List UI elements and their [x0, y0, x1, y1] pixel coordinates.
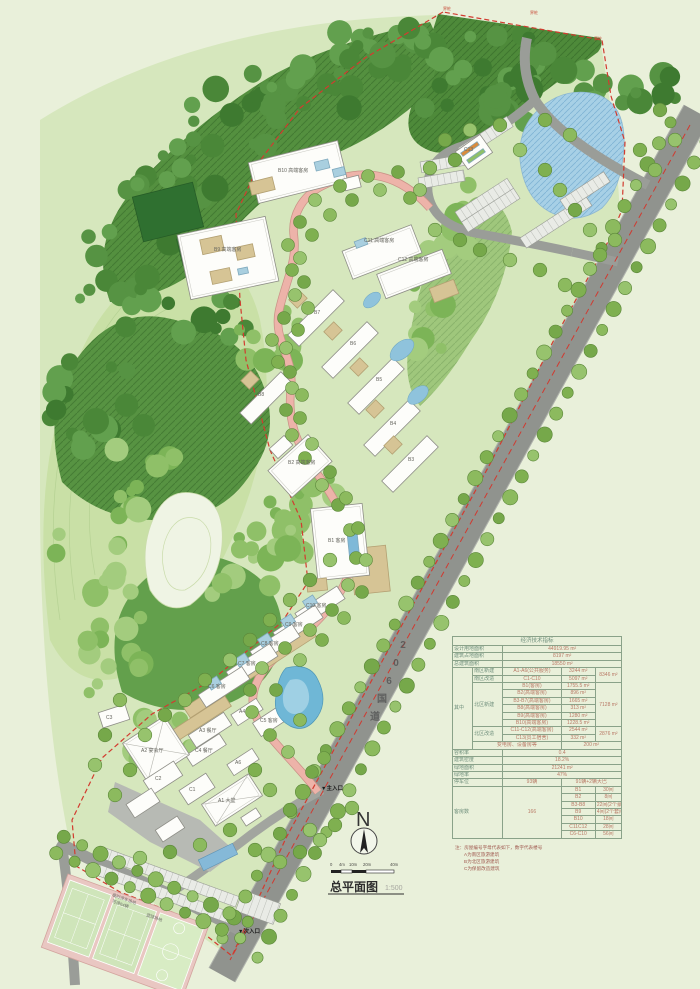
forest-canopy [395, 54, 412, 71]
forest-canopy [409, 301, 422, 314]
street-tree [330, 722, 345, 737]
street-tree [434, 615, 449, 630]
street-tree [298, 276, 311, 289]
table-cell: 南区改造 [473, 675, 503, 682]
road-name-char: 0 [393, 658, 399, 669]
street-tree [537, 345, 552, 360]
forest-canopy [337, 95, 362, 120]
table-cell: 18550 m² [503, 660, 622, 667]
forest-canopy [486, 26, 507, 47]
street-tree [278, 312, 291, 325]
street-tree [293, 845, 307, 859]
street-tree [502, 408, 517, 423]
street-tree [342, 702, 355, 715]
street-tree [306, 438, 319, 451]
street-tree [168, 881, 181, 894]
forest-canopy [115, 393, 138, 416]
street-tree [193, 838, 207, 852]
street-tree [244, 684, 257, 697]
scale-tick: 10m [349, 862, 358, 867]
street-tree [605, 219, 620, 234]
building-label-c11: C11 高端客房 [364, 237, 394, 244]
table-cell: 2876 m² [595, 727, 621, 742]
street-tree [203, 897, 218, 912]
street-tree [584, 344, 597, 357]
table-title: 经济技术指标 [453, 637, 622, 646]
street-tree [597, 324, 608, 335]
street-tree [284, 366, 297, 379]
street-tree [138, 728, 152, 742]
forest-canopy [290, 54, 316, 80]
forest-canopy [184, 97, 200, 113]
street-tree [618, 199, 631, 212]
street-tree [412, 658, 425, 671]
forest-canopy [201, 175, 228, 202]
forest-canopy [464, 31, 476, 43]
street-tree [292, 324, 305, 337]
boundary-marker: 界桩 [530, 9, 538, 15]
street-tree [296, 866, 311, 881]
table-cell: 3244 m² [561, 668, 595, 675]
street-tree [196, 914, 211, 929]
street-tree [563, 128, 577, 142]
street-tree [399, 678, 414, 693]
street-tree [286, 429, 299, 442]
scale-tick: 4m [339, 862, 345, 867]
street-tree [93, 846, 108, 861]
forest-canopy [100, 658, 116, 674]
street-tree [328, 818, 342, 832]
street-tree [549, 325, 562, 338]
street-tree [264, 729, 277, 742]
street-tree [141, 888, 156, 903]
street-tree [631, 262, 642, 273]
forest-canopy [46, 400, 66, 420]
street-tree [640, 239, 655, 254]
street-tree [338, 612, 351, 625]
table-cell: B3-B8 [561, 801, 595, 808]
table-cell: C11C12 [561, 823, 595, 830]
forest-canopy [99, 575, 111, 587]
table-cell: 总建筑面积 [453, 660, 503, 667]
drawing-title: 总平面图 1:500 [328, 879, 404, 894]
street-tree [446, 513, 459, 526]
street-tree [105, 872, 118, 885]
forest-canopy [78, 631, 98, 651]
table-cell: 绿地率 [453, 771, 503, 778]
table-cell: 容积率 [453, 749, 503, 756]
building-label-b4: B4 [390, 421, 396, 427]
table-cell: 5097 m² [561, 675, 595, 682]
forest-canopy [130, 659, 148, 677]
street-tree [124, 882, 135, 893]
boundary-marker: 界桩 [594, 35, 602, 41]
street-tree [316, 634, 329, 647]
street-tree [261, 929, 276, 944]
street-tree [303, 573, 317, 587]
street-tree [365, 741, 380, 756]
street-tree [252, 952, 263, 963]
forest-canopy [158, 171, 175, 188]
street-tree [178, 693, 192, 707]
street-tree [113, 693, 127, 707]
forest-canopy [119, 362, 136, 379]
street-tree [528, 450, 539, 461]
forest-canopy [165, 448, 183, 466]
street-tree [377, 639, 390, 652]
street-tree [527, 368, 538, 379]
forest-canopy [72, 430, 88, 446]
street-tree [294, 216, 307, 229]
street-tree [324, 209, 337, 222]
street-tree [468, 552, 483, 567]
forest-canopy [110, 507, 127, 524]
scale-tick: 40m [390, 862, 399, 867]
forest-canopy [327, 20, 352, 45]
table-cell: B10 [561, 816, 595, 823]
building-label-b2: B2 高端客房 [288, 459, 316, 466]
street-tree [163, 845, 177, 859]
street-tree [308, 846, 321, 859]
building-label-b9: B9 高端客房 [214, 246, 242, 253]
street-tree [360, 554, 373, 567]
building-label-b8: B8 [258, 392, 264, 398]
street-tree [294, 654, 307, 667]
street-tree [123, 763, 137, 777]
street-tree [133, 851, 147, 865]
street-tree [280, 342, 293, 355]
street-tree [343, 784, 356, 797]
building-label-c12: C12 高端客房 [398, 256, 429, 263]
street-tree [652, 137, 665, 150]
street-tree [223, 823, 237, 837]
street-tree [263, 613, 277, 627]
scale-tick: 20m [363, 862, 372, 867]
forest-canopy [134, 611, 147, 624]
forest-canopy [249, 90, 263, 104]
street-tree [77, 840, 88, 851]
forest-canopy [61, 353, 78, 370]
street-tree [273, 827, 286, 840]
street-tree [282, 746, 295, 759]
street-tree [428, 223, 442, 237]
street-tree [630, 180, 641, 191]
legend-notes: 注：房屋编号字母代表如下，数字代表楼号 A为南区旅游建筑 B为北区旅游建筑 C为… [455, 844, 543, 872]
building-label-b3: B3 [408, 457, 414, 463]
building-label-c10: C10 客房 [306, 602, 327, 609]
street-tree [537, 427, 552, 442]
street-tree [248, 843, 262, 857]
street-tree [448, 153, 462, 167]
forest-canopy [532, 42, 556, 66]
forest-canopy [126, 486, 136, 496]
site-plan-canvas: B10 高端客房 B9 高端客房 C11 高端客房 C12 高端客房 C13 B… [0, 0, 700, 989]
street-tree [468, 470, 483, 485]
street-tree [313, 833, 327, 847]
street-tree [633, 143, 647, 157]
forest-canopy [162, 296, 176, 310]
table-cell: A1-A6(公共服务) [503, 668, 561, 675]
forest-canopy [474, 58, 492, 76]
forest-canopy [201, 134, 225, 158]
page-title: 总平面图 [330, 879, 378, 894]
table-cell: 200 m² [561, 742, 621, 749]
forest-canopy [210, 322, 222, 334]
street-tree [424, 638, 435, 649]
table-cell: 4间(2个套间) [595, 808, 621, 815]
table-cell: B1(客房) [503, 683, 561, 690]
table-cell: 47% [503, 771, 622, 778]
forest-canopy [169, 138, 187, 156]
street-tree [112, 856, 125, 869]
street-tree [187, 891, 198, 902]
building-label-b7: B7 [314, 310, 320, 316]
table-cell: 313 m² [561, 705, 595, 712]
street-tree [513, 143, 527, 157]
street-tree [389, 619, 400, 630]
street-tree [453, 233, 467, 247]
forest-canopy [369, 42, 396, 69]
street-tree [653, 219, 666, 232]
forest-canopy [52, 528, 65, 541]
street-tree [553, 183, 567, 197]
street-tree [399, 596, 414, 611]
table-cell: 停车位 [453, 779, 503, 786]
road-name-char: 道 [370, 710, 380, 723]
forest-canopy [202, 76, 229, 103]
table-cell: 0.4 [503, 749, 622, 756]
street-tree [295, 784, 310, 799]
street-tree [132, 865, 143, 876]
street-tree [286, 889, 297, 900]
street-tree [340, 492, 353, 505]
table-cell: 南区新建 [473, 668, 503, 675]
forest-canopy [415, 98, 435, 118]
street-tree [324, 466, 337, 479]
street-tree [355, 764, 366, 775]
forest-canopy [47, 544, 66, 563]
table-cell: B3-B7(高端客房) [503, 697, 561, 704]
street-tree [294, 714, 307, 727]
table-cell: B2(高端客房) [503, 690, 561, 697]
street-tree [480, 451, 493, 464]
forest-canopy [264, 495, 277, 508]
forest-canopy [247, 521, 267, 541]
street-tree [279, 642, 292, 655]
table-cell: 896 m² [561, 690, 595, 697]
table-cell: 18.2% [503, 757, 622, 764]
forest-canopy [186, 131, 201, 146]
forest-canopy [231, 540, 249, 558]
table-cell: 91辆+2辆大巴 [561, 779, 621, 786]
street-tree [223, 907, 236, 920]
street-tree [463, 123, 477, 137]
street-tree [326, 604, 339, 617]
street-tree [304, 624, 317, 637]
table-cell: 8346 m² [595, 668, 621, 683]
table-cell: 21241 m² [503, 764, 622, 771]
street-tree [572, 364, 587, 379]
forest-canopy [267, 82, 278, 93]
forest-canopy [630, 87, 641, 98]
forest-canopy [92, 678, 103, 689]
forest-canopy [130, 177, 144, 191]
street-tree [246, 706, 259, 719]
street-tree [85, 863, 100, 878]
street-tree [515, 470, 528, 483]
forest-canopy [83, 408, 109, 434]
building-label-a4: A4 [239, 709, 245, 715]
street-tree [515, 388, 528, 401]
street-tree [687, 156, 700, 169]
street-tree [306, 229, 319, 242]
forest-canopy [484, 85, 508, 109]
forest-canopy [188, 116, 199, 127]
street-tree [272, 356, 285, 369]
forest-canopy [274, 535, 301, 562]
forest-canopy [83, 284, 95, 296]
table-cell: 建筑密度 [453, 757, 503, 764]
street-tree [294, 412, 307, 425]
street-tree [374, 184, 387, 197]
street-tree [481, 533, 494, 546]
forest-canopy [266, 109, 286, 129]
table-cell: 7128 m² [595, 683, 621, 727]
table-cell: 8间 [595, 794, 621, 801]
building-label-a2: A2 宴会厅 [141, 747, 164, 754]
forest-canopy [83, 584, 106, 607]
scale-tick: 0 [330, 862, 333, 867]
street-tree [286, 264, 299, 277]
forest-canopy [436, 343, 447, 354]
building-label-c9: C9 客房 [285, 621, 303, 628]
street-tree [362, 170, 375, 183]
forest-canopy [440, 99, 453, 112]
table-cell: B2 [561, 794, 595, 801]
forest-canopy [244, 65, 262, 83]
forest-canopy [75, 294, 85, 304]
street-tree [355, 682, 366, 693]
building-label-b6: B6 [350, 341, 356, 347]
street-tree [263, 783, 277, 797]
road-name-char: 6 [386, 676, 392, 687]
forest-canopy [415, 33, 431, 49]
table-cell: 56间 [595, 831, 621, 838]
table-cell: B8(高端客房) [503, 705, 561, 712]
street-tree [433, 533, 448, 548]
building-label-c8: C8 客房 [261, 640, 279, 647]
table-cell: 变电房、设备房等 [473, 742, 562, 749]
street-tree [390, 701, 401, 712]
street-tree [608, 233, 622, 247]
street-tree [538, 113, 552, 127]
table-cell: B9 [561, 808, 595, 815]
indicators-table: 经济技术指标设计用地面积44919.95 m²建筑占地面积8197 m²总建筑面… [452, 636, 622, 839]
note-line: C为保留改造建筑 [464, 865, 500, 872]
forest-canopy [115, 316, 136, 337]
street-tree [493, 118, 507, 132]
street-tree [273, 855, 287, 869]
street-tree [668, 133, 682, 147]
street-tree [538, 163, 552, 177]
forest-canopy [81, 229, 96, 244]
street-tree [458, 493, 469, 504]
street-tree [239, 890, 252, 903]
building-label-c6: C6 客房 [208, 683, 226, 690]
forest-canopy [114, 490, 127, 503]
forest-canopy [220, 103, 244, 127]
forest-canopy [106, 361, 117, 372]
street-tree [459, 575, 470, 586]
forest-canopy [254, 134, 278, 158]
forest-canopy [398, 17, 420, 39]
forest-canopy [327, 81, 342, 96]
forest-canopy [285, 525, 296, 536]
master-plan-drawing: B10 高端客房 B9 高端客房 C11 高端客房 C12 高端客房 C13 B… [0, 0, 700, 989]
street-tree [274, 909, 287, 922]
street-tree [392, 166, 405, 179]
table-cell: 2544 m² [561, 727, 595, 734]
table-cell: C1-C10 [503, 675, 561, 682]
forest-canopy [108, 537, 126, 555]
note-line: B为北区旅游建筑 [464, 858, 500, 865]
street-tree [606, 301, 621, 316]
table-cell: B9(高端客房) [503, 712, 561, 719]
forest-canopy [296, 96, 311, 111]
street-tree [69, 856, 80, 867]
forest-canopy [126, 497, 152, 523]
table-cell: 18间 [595, 816, 621, 823]
street-tree [665, 199, 676, 210]
street-tree [411, 576, 424, 589]
street-tree [583, 223, 597, 237]
table-cell: C6-C10 [561, 831, 595, 838]
forest-canopy [339, 49, 360, 70]
table-cell: 30间 [595, 786, 621, 793]
street-tree [653, 103, 667, 117]
forest-canopy [246, 329, 261, 344]
table-cell: 绿地面积 [453, 764, 503, 771]
forest-canopy [362, 27, 373, 38]
street-tree [309, 194, 322, 207]
table-cell: 28间 [595, 823, 621, 830]
street-tree [98, 728, 112, 742]
table-cell: C13(员工宿舍) [503, 734, 561, 741]
forest-canopy [660, 67, 680, 87]
building-label-a1: A1 大堂 [218, 797, 236, 804]
street-tree [503, 253, 517, 267]
table-cell: 1280 m² [561, 712, 595, 719]
street-tree [446, 595, 459, 608]
forest-canopy [105, 438, 129, 462]
forest-canopy [432, 78, 448, 94]
forest-canopy [259, 575, 280, 596]
street-tree [364, 659, 379, 674]
forest-canopy [212, 573, 232, 593]
street-tree [342, 579, 355, 592]
street-tree [158, 708, 172, 722]
street-tree [50, 847, 63, 860]
building-label-c2: C2 [155, 776, 162, 782]
street-tree [473, 243, 487, 257]
forest-canopy [158, 150, 169, 161]
building-label-c3: C3 [106, 715, 113, 721]
street-tree [318, 752, 331, 765]
street-tree [283, 593, 297, 607]
building-label-c5: C5 客房 [260, 717, 278, 724]
street-tree [352, 522, 365, 535]
forest-canopy [223, 294, 239, 310]
